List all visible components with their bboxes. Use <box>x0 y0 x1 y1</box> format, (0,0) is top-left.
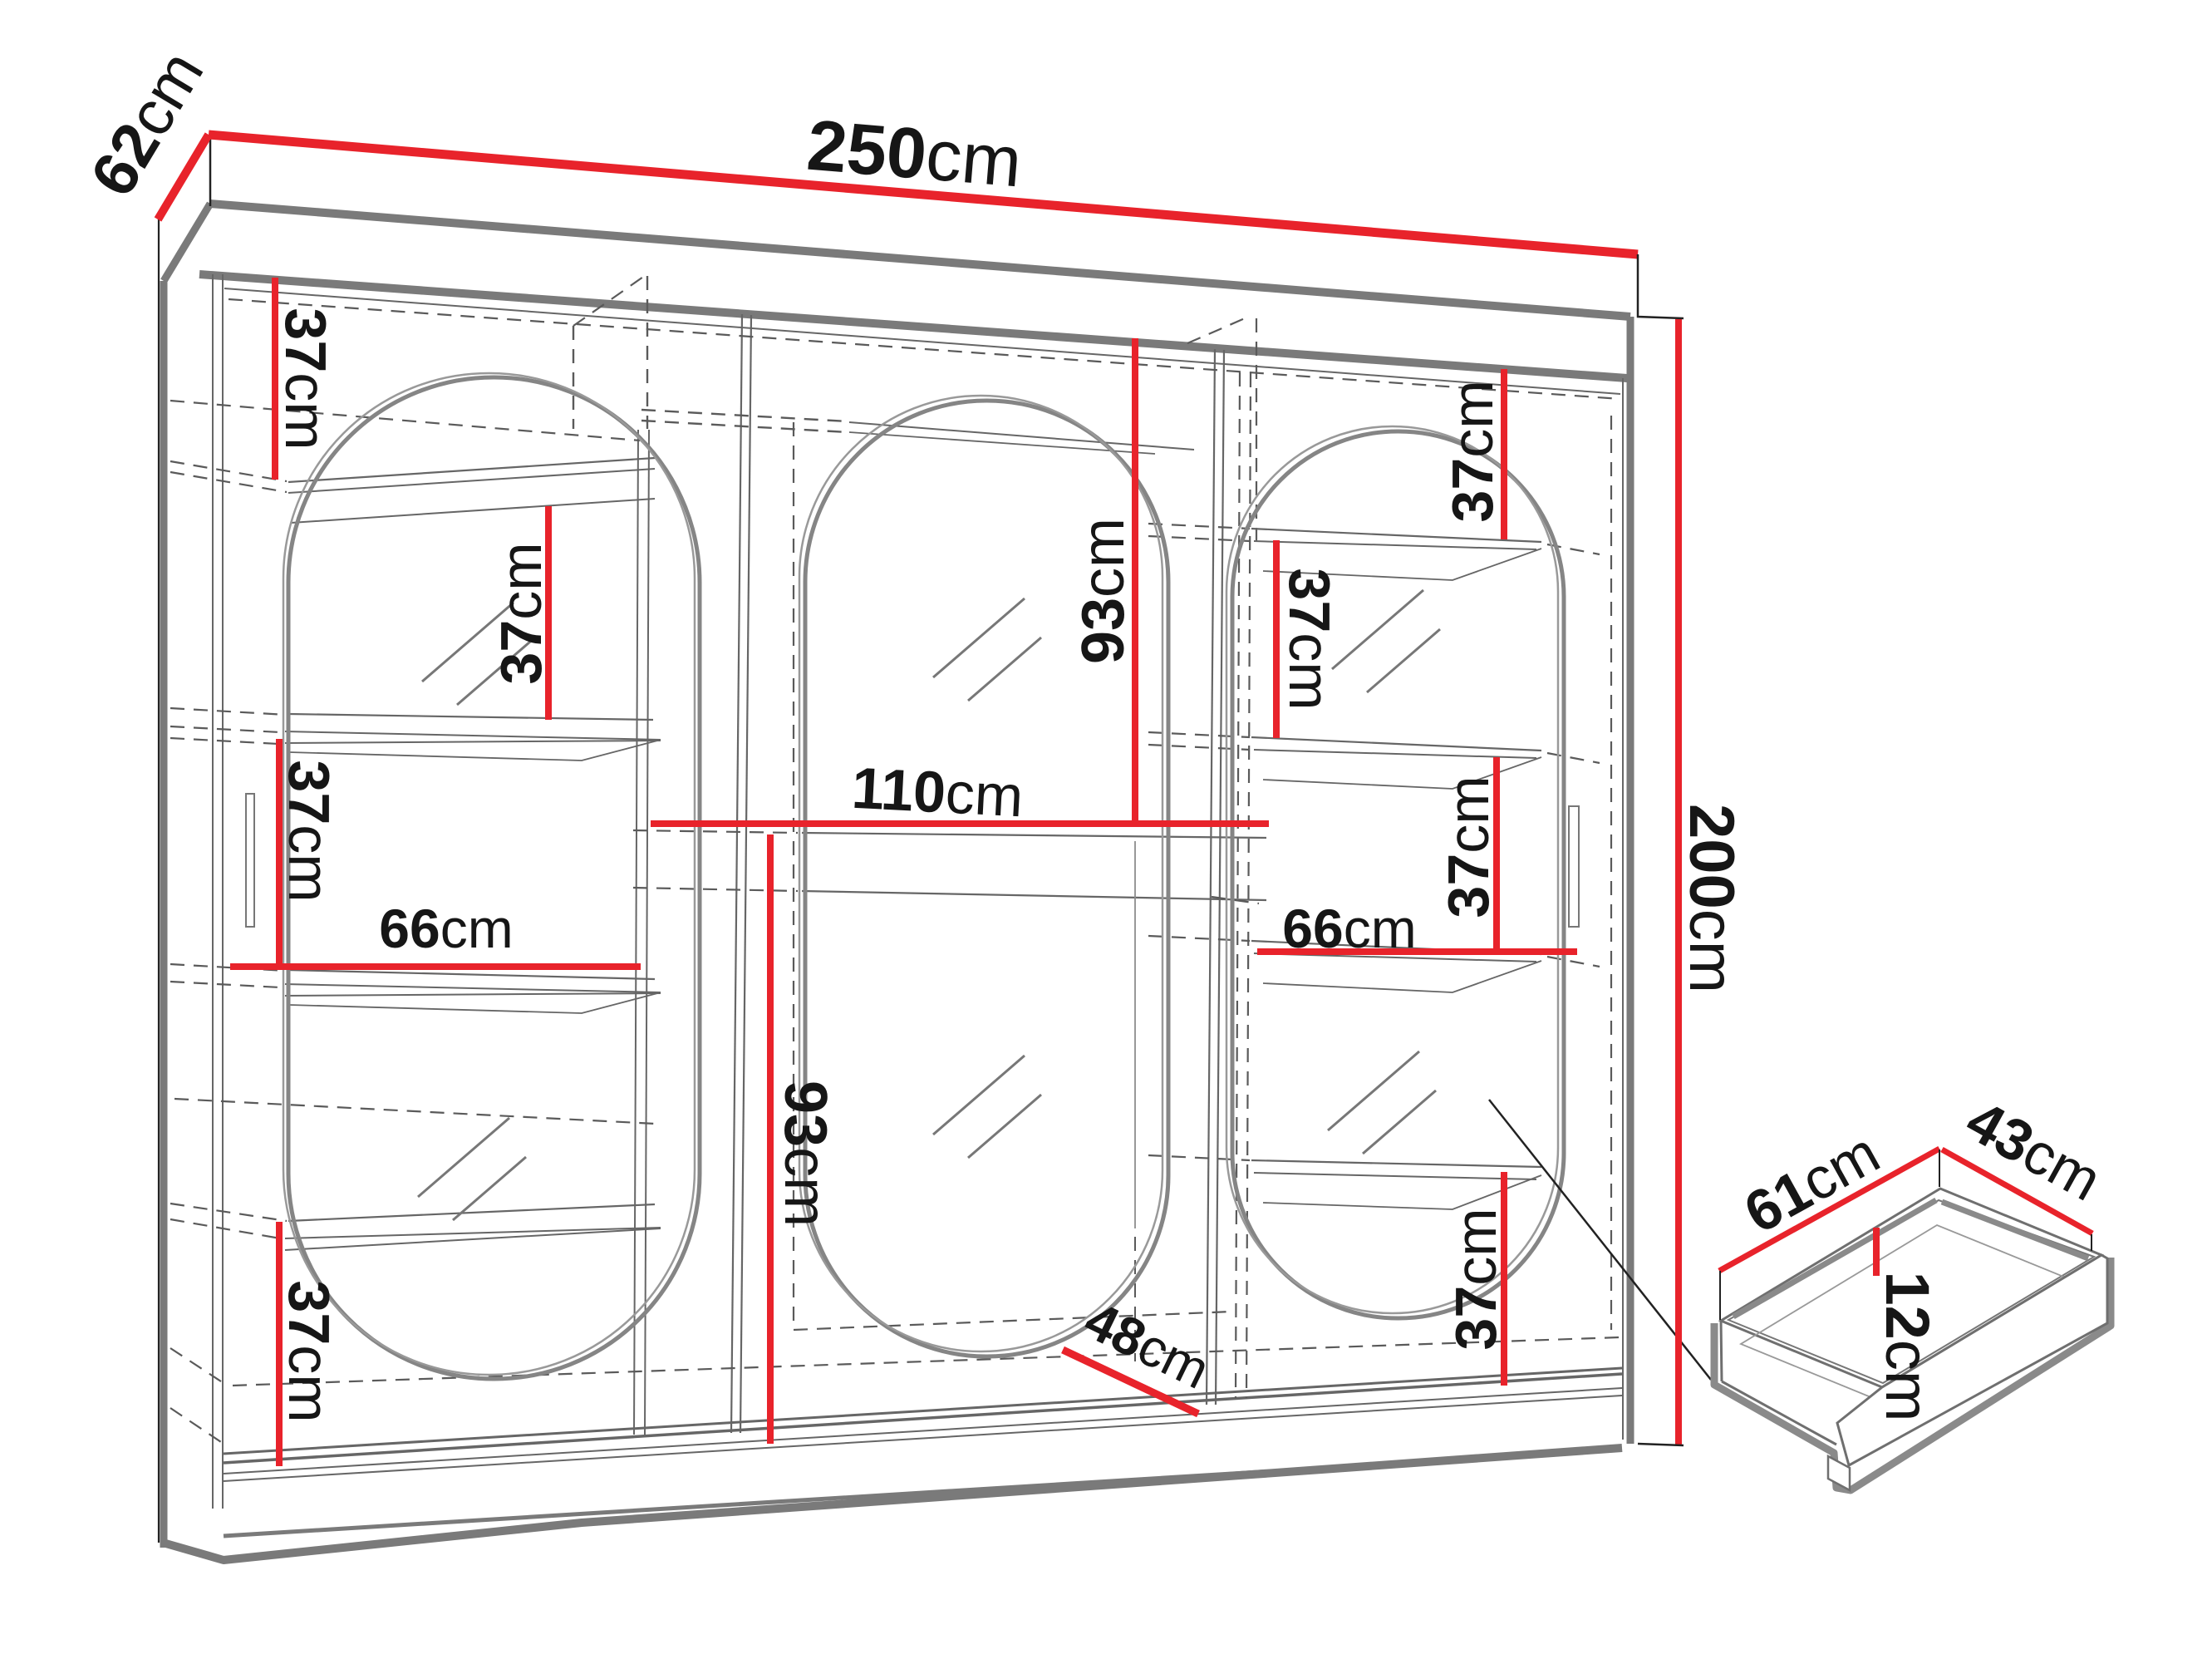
svg-text:200cm: 200cm <box>1676 804 1747 993</box>
svg-text:37cm: 37cm <box>277 1280 342 1422</box>
svg-text:93cm: 93cm <box>1070 518 1137 664</box>
svg-text:93cm: 93cm <box>772 1081 838 1227</box>
svg-text:66cm: 66cm <box>379 898 513 959</box>
svg-text:37cm: 37cm <box>273 308 338 450</box>
svg-text:37cm: 37cm <box>277 760 342 902</box>
svg-text:37cm: 37cm <box>1443 1208 1508 1350</box>
svg-text:37cm: 37cm <box>1436 775 1501 918</box>
svg-text:37cm: 37cm <box>1440 380 1505 522</box>
svg-text:66cm: 66cm <box>1282 898 1416 959</box>
svg-text:37cm: 37cm <box>489 542 553 684</box>
svg-text:110cm: 110cm <box>850 756 1025 829</box>
svg-text:37cm: 37cm <box>1277 568 1342 710</box>
svg-text:12cm: 12cm <box>1873 1272 1942 1422</box>
